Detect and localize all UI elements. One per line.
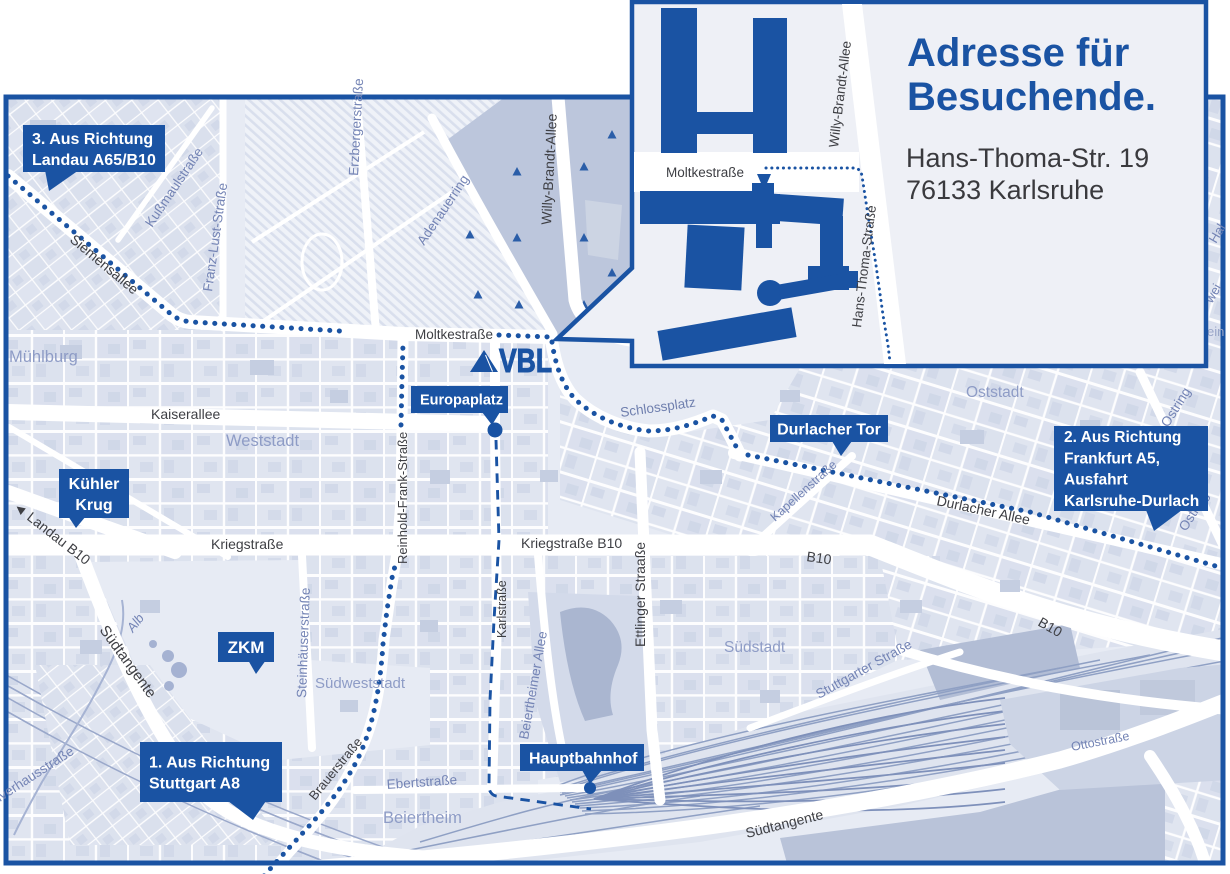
svg-text:Karlsruhe-Durlach: Karlsruhe-Durlach — [1064, 493, 1199, 510]
svg-text:Moltkestraße: Moltkestraße — [415, 327, 493, 342]
svg-text:Krug: Krug — [75, 497, 112, 514]
svg-text:Ettlinger Straaße: Ettlinger Straaße — [632, 542, 648, 647]
svg-text:Südstadt: Südstadt — [724, 639, 786, 656]
svg-text:2. Aus Richtung: 2. Aus Richtung — [1064, 429, 1181, 446]
svg-text:Kaiserallee: Kaiserallee — [151, 406, 220, 422]
svg-text:Stuttgart A8: Stuttgart A8 — [149, 775, 240, 792]
svg-text:ein: ein — [1207, 324, 1224, 339]
svg-text:Oststadt: Oststadt — [966, 384, 1024, 401]
svg-text:Kriegstraße B10: Kriegstraße B10 — [521, 535, 622, 551]
svg-text:Frankfurt A5,: Frankfurt A5, — [1064, 450, 1160, 467]
svg-text:Beiertheim: Beiertheim — [383, 809, 462, 827]
svg-text:Kriegstraße: Kriegstraße — [211, 536, 284, 552]
svg-text:76133 Karlsruhe: 76133 Karlsruhe — [906, 175, 1104, 205]
svg-text:Hauptbahnhof: Hauptbahnhof — [529, 750, 638, 767]
svg-text:Durlacher Tor: Durlacher Tor — [777, 421, 881, 438]
svg-text:Adresse für: Adresse für — [907, 31, 1129, 75]
svg-text:Hans-Thoma-Str. 19: Hans-Thoma-Str. 19 — [906, 143, 1149, 173]
svg-text:Mühlburg: Mühlburg — [9, 348, 78, 366]
svg-text:Moltkestraße: Moltkestraße — [666, 165, 744, 180]
svg-text:1. Aus Richtung: 1. Aus Richtung — [149, 754, 270, 771]
svg-text:ZKM: ZKM — [228, 638, 265, 657]
svg-text:Ausfahrt: Ausfahrt — [1064, 472, 1128, 489]
svg-text:Europaplatz: Europaplatz — [420, 393, 503, 409]
svg-text:3. Aus Richtung: 3. Aus Richtung — [32, 131, 153, 148]
svg-text:VBL: VBL — [499, 342, 552, 379]
svg-text:Reinhold-Frank-Straße: Reinhold-Frank-Straße — [395, 432, 410, 564]
svg-text:Südweststadt: Südweststadt — [315, 675, 406, 692]
svg-text:Weststadt: Weststadt — [226, 432, 299, 450]
svg-text:Besuchende.: Besuchende. — [907, 75, 1156, 119]
svg-text:Karlstraße: Karlstraße — [495, 580, 509, 638]
svg-text:Landau A65/B10: Landau A65/B10 — [32, 152, 156, 169]
svg-text:Kühler: Kühler — [69, 476, 120, 493]
